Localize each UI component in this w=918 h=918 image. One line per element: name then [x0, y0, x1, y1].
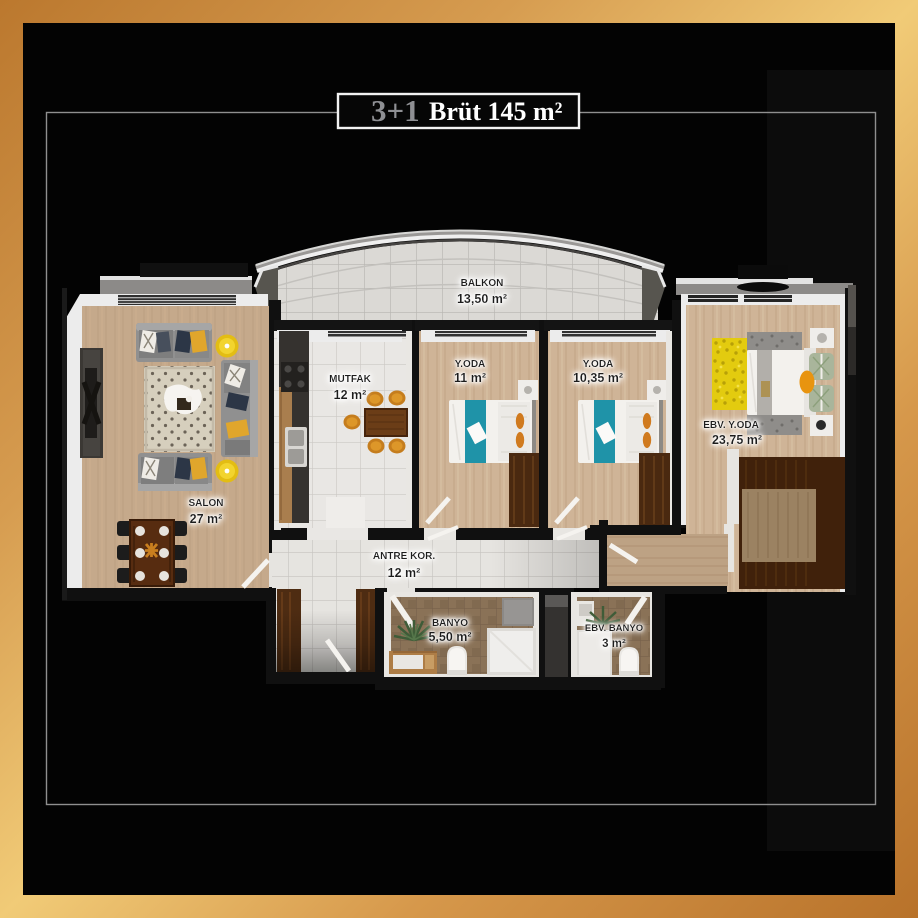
svg-text:23,75 m²: 23,75 m²	[712, 433, 762, 447]
svg-text:3+1: 3+1	[371, 93, 420, 128]
svg-text:12 m²: 12 m²	[334, 388, 367, 402]
svg-text:5,50 m²: 5,50 m²	[428, 630, 471, 644]
svg-text:MUTFAK: MUTFAK	[329, 374, 371, 385]
svg-text:EBV. Y.ODA: EBV. Y.ODA	[703, 420, 759, 431]
svg-text:ANTRE KOR.: ANTRE KOR.	[373, 551, 435, 562]
svg-text:13,50 m²: 13,50 m²	[457, 292, 507, 306]
svg-text:BALKON: BALKON	[461, 278, 504, 289]
svg-text:Y.ODA: Y.ODA	[583, 359, 614, 370]
svg-text:3 m²: 3 m²	[602, 638, 626, 650]
svg-text:Y.ODA: Y.ODA	[455, 359, 486, 370]
svg-text:EBV. BANYO: EBV. BANYO	[585, 623, 643, 634]
svg-text:27 m²: 27 m²	[190, 512, 223, 526]
svg-text:Brüt 145 m²: Brüt 145 m²	[429, 97, 563, 126]
svg-text:BANYO: BANYO	[432, 618, 468, 629]
svg-text:11 m²: 11 m²	[454, 371, 486, 385]
svg-text:10,35 m²: 10,35 m²	[573, 371, 623, 385]
svg-text:SALON: SALON	[189, 498, 224, 509]
svg-text:12 m²: 12 m²	[388, 566, 421, 580]
